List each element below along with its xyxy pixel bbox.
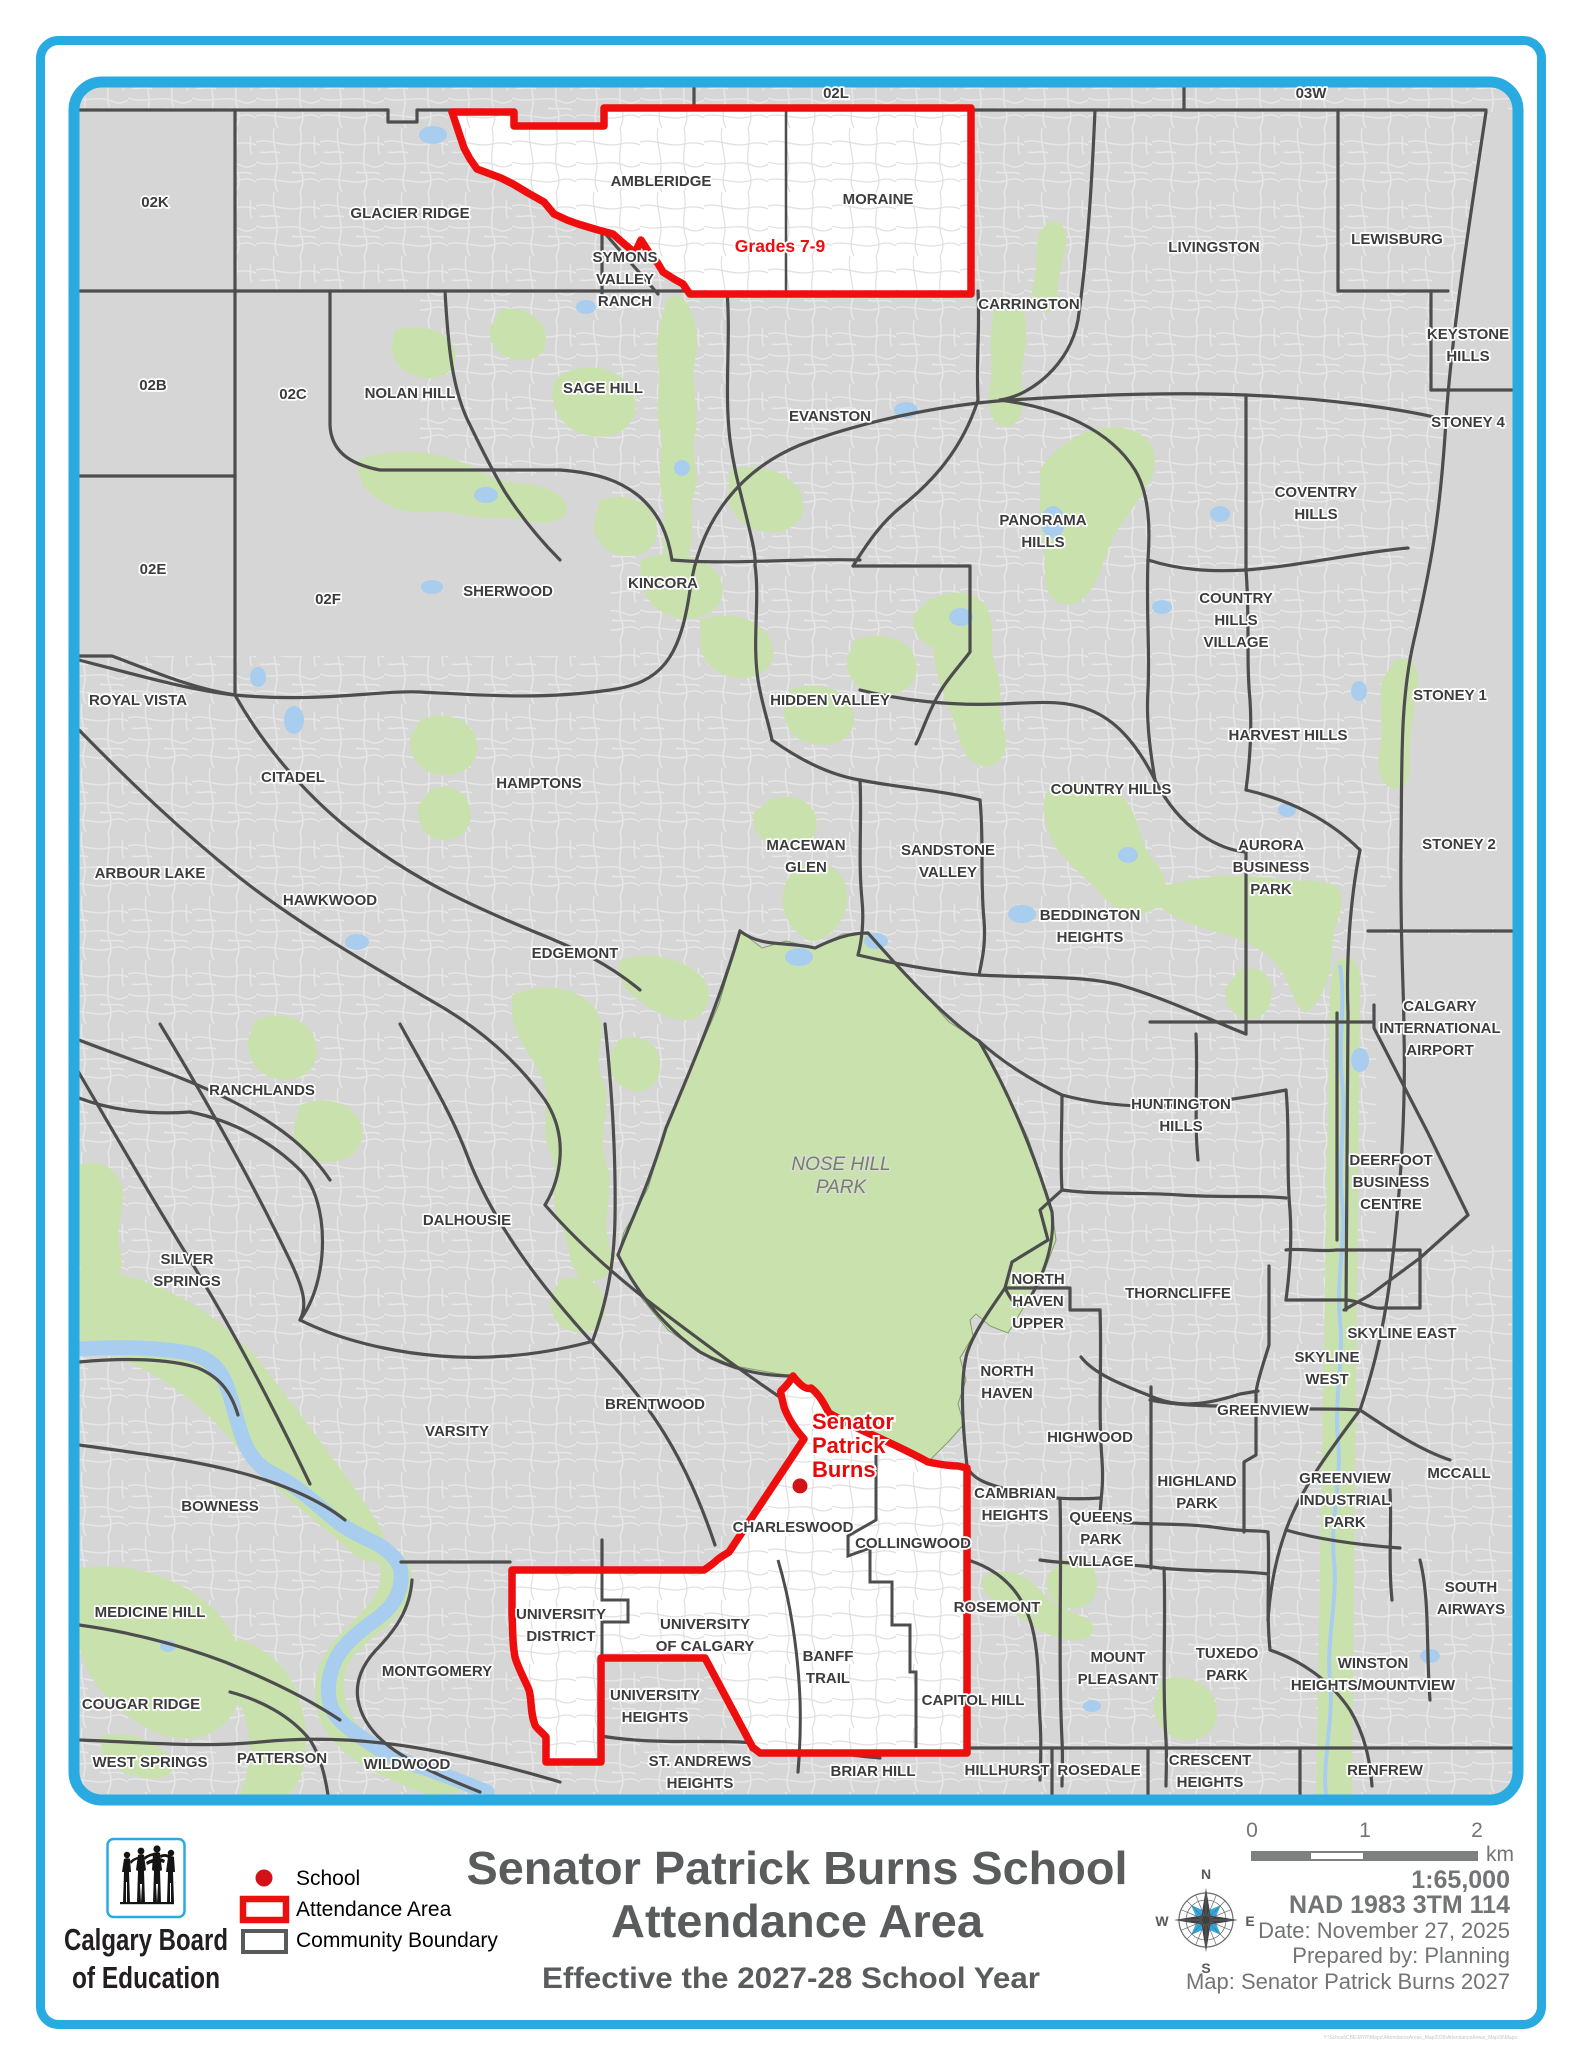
svg-text:INDUSTRIAL: INDUSTRIAL	[1300, 1492, 1391, 1509]
svg-text:EDGEMONT: EDGEMONT	[532, 945, 619, 962]
svg-text:SKYLINE EAST: SKYLINE EAST	[1347, 1325, 1456, 1342]
svg-text:DALHOUSIE: DALHOUSIE	[423, 1212, 511, 1229]
svg-text:CAPITOL HILL: CAPITOL HILL	[922, 1692, 1025, 1709]
svg-text:1:65,000: 1:65,000	[1411, 1866, 1510, 1894]
svg-text:VILLAGE: VILLAGE	[1203, 634, 1268, 651]
svg-text:HIGHWOOD: HIGHWOOD	[1047, 1429, 1133, 1446]
svg-text:NORTH: NORTH	[980, 1363, 1033, 1380]
svg-text:ROYAL VISTA: ROYAL VISTA	[89, 692, 187, 709]
svg-text:COVENTRY: COVENTRY	[1275, 484, 1358, 501]
svg-text:RENFREW: RENFREW	[1347, 1762, 1424, 1779]
svg-text:03W: 03W	[1296, 85, 1328, 102]
svg-text:02F: 02F	[315, 591, 341, 608]
svg-text:MORAINE: MORAINE	[843, 191, 914, 208]
svg-text:HAWKWOOD: HAWKWOOD	[283, 892, 377, 909]
svg-text:RANCHLANDS: RANCHLANDS	[209, 1082, 315, 1099]
svg-text:Calgary Board: Calgary Board	[64, 1922, 228, 1957]
svg-text:VALLEY: VALLEY	[919, 864, 977, 881]
svg-text:LEWISBURG: LEWISBURG	[1351, 231, 1443, 248]
svg-text:School: School	[296, 1867, 360, 1890]
svg-text:02B: 02B	[139, 377, 167, 394]
svg-text:WILDWOOD: WILDWOOD	[364, 1756, 451, 1773]
svg-text:W: W	[1155, 1913, 1169, 1929]
svg-text:Attendance Area: Attendance Area	[611, 1895, 983, 1947]
svg-text:of Education: of Education	[72, 1960, 220, 1995]
svg-text:BEDDINGTON: BEDDINGTON	[1040, 907, 1141, 924]
svg-text:HAVEN: HAVEN	[981, 1385, 1032, 1402]
svg-text:PARK: PARK	[1176, 1495, 1218, 1512]
svg-text:OF CALGARY: OF CALGARY	[656, 1638, 755, 1655]
svg-text:WINSTON: WINSTON	[1338, 1655, 1409, 1672]
svg-text:TUXEDO: TUXEDO	[1196, 1645, 1259, 1662]
svg-text:SOUTH: SOUTH	[1445, 1579, 1498, 1596]
svg-text:GLACIER RIDGE: GLACIER RIDGE	[350, 205, 469, 222]
svg-text:PARK: PARK	[1324, 1514, 1366, 1531]
svg-text:MCCALL: MCCALL	[1427, 1465, 1490, 1482]
svg-text:BUSINESS: BUSINESS	[1233, 859, 1310, 876]
svg-text:DISTRICT: DISTRICT	[526, 1628, 595, 1645]
svg-text:HEIGHTS/MOUNTVIEW: HEIGHTS/MOUNTVIEW	[1291, 1677, 1456, 1694]
svg-text:HEIGHTS: HEIGHTS	[982, 1507, 1049, 1524]
svg-text:LIVINGSTON: LIVINGSTON	[1168, 239, 1259, 256]
svg-text:1: 1	[1359, 1819, 1371, 1842]
svg-text:MONTGOMERY: MONTGOMERY	[382, 1663, 492, 1680]
svg-text:GREENVIEW: GREENVIEW	[1217, 1402, 1310, 1419]
svg-text:VARSITY: VARSITY	[425, 1423, 489, 1440]
svg-text:HARVEST HILLS: HARVEST HILLS	[1229, 727, 1348, 744]
svg-text:SYMONS: SYMONS	[592, 249, 657, 266]
svg-text:BANFF: BANFF	[803, 1648, 854, 1665]
svg-text:CENTRE: CENTRE	[1360, 1196, 1422, 1213]
svg-text:INTERNATIONAL: INTERNATIONAL	[1379, 1020, 1500, 1037]
svg-text:COUNTRY: COUNTRY	[1199, 590, 1273, 607]
svg-text:02L: 02L	[823, 85, 849, 102]
svg-text:BUSINESS: BUSINESS	[1353, 1174, 1430, 1191]
svg-text:HILLS: HILLS	[1021, 534, 1064, 551]
svg-text:CITADEL: CITADEL	[261, 769, 325, 786]
svg-text:GLEN: GLEN	[785, 859, 827, 876]
svg-text:Prepared by: Planning: Prepared by: Planning	[1292, 1943, 1510, 1968]
svg-text:Map: Senator Patrick Burns 202: Map: Senator Patrick Burns 2027	[1186, 1969, 1510, 1994]
svg-text:Grades 7-9: Grades 7-9	[735, 236, 826, 256]
svg-text:SHERWOOD: SHERWOOD	[463, 583, 553, 600]
svg-text:HEIGHTS: HEIGHTS	[622, 1709, 689, 1726]
svg-text:CHARLESWOOD: CHARLESWOOD	[733, 1519, 854, 1536]
svg-text:TRAIL: TRAIL	[806, 1670, 850, 1687]
svg-text:UPPER: UPPER	[1012, 1315, 1064, 1332]
svg-text:VILLAGE: VILLAGE	[1068, 1553, 1133, 1570]
svg-text:SPRINGS: SPRINGS	[153, 1273, 221, 1290]
svg-text:02E: 02E	[140, 561, 167, 578]
svg-text:AIRPORT: AIRPORT	[1406, 1042, 1474, 1059]
svg-text:km: km	[1486, 1843, 1514, 1866]
svg-text:NAD 1983 3TM 114: NAD 1983 3TM 114	[1289, 1891, 1510, 1919]
svg-text:ARBOUR LAKE: ARBOUR LAKE	[95, 865, 206, 882]
svg-text:ST. ANDREWS: ST. ANDREWS	[649, 1753, 752, 1770]
svg-text:CRESCENT: CRESCENT	[1169, 1752, 1252, 1769]
svg-text:BRENTWOOD: BRENTWOOD	[605, 1396, 705, 1413]
svg-text:Senator Patrick Burns School: Senator Patrick Burns School	[467, 1842, 1128, 1894]
svg-text:PATTERSON: PATTERSON	[237, 1750, 327, 1767]
svg-text:Senator: Senator	[812, 1409, 894, 1434]
svg-text:QUEENS: QUEENS	[1069, 1509, 1132, 1526]
svg-text:STONEY 4: STONEY 4	[1431, 414, 1505, 431]
svg-text:HAVEN: HAVEN	[1012, 1293, 1063, 1310]
svg-text:HEIGHTS: HEIGHTS	[1177, 1774, 1244, 1791]
svg-text:WEST: WEST	[1305, 1371, 1348, 1388]
svg-text:KINCORA: KINCORA	[628, 575, 698, 592]
svg-text:HIGHLAND: HIGHLAND	[1157, 1473, 1236, 1490]
svg-text:PARK: PARK	[1206, 1667, 1248, 1684]
svg-text:SANDSTONE: SANDSTONE	[901, 842, 995, 859]
svg-text:CARRINGTON: CARRINGTON	[978, 296, 1079, 313]
svg-text:2: 2	[1471, 1819, 1483, 1842]
svg-text:HILLS: HILLS	[1294, 506, 1337, 523]
svg-text:Date: November 27, 2025: Date: November 27, 2025	[1258, 1918, 1510, 1943]
svg-text:ROSEMONT: ROSEMONT	[954, 1599, 1041, 1616]
svg-text:Y:\School\CBE\MYP\Maps\Attenda: Y:\School\CBE\MYP\Maps\AttendanceAreas_M…	[1324, 2035, 1518, 2041]
svg-text:Burns: Burns	[812, 1457, 876, 1482]
svg-text:HILLS: HILLS	[1446, 348, 1489, 365]
svg-text:Patrick: Patrick	[812, 1433, 886, 1458]
svg-text:STONEY 2: STONEY 2	[1422, 836, 1496, 853]
svg-text:HEIGHTS: HEIGHTS	[667, 1775, 734, 1792]
svg-text:ROSEDALE: ROSEDALE	[1057, 1762, 1140, 1779]
svg-text:SILVER: SILVER	[160, 1251, 213, 1268]
svg-text:AIRWAYS: AIRWAYS	[1437, 1601, 1505, 1618]
svg-text:PARK: PARK	[1250, 881, 1292, 898]
svg-text:SAGE HILL: SAGE HILL	[563, 380, 643, 397]
svg-text:UNIVERSITY: UNIVERSITY	[660, 1616, 750, 1633]
svg-text:HILLS: HILLS	[1214, 612, 1257, 629]
svg-text:E: E	[1245, 1913, 1254, 1929]
svg-text:PLEASANT: PLEASANT	[1078, 1671, 1159, 1688]
svg-text:PANORAMA: PANORAMA	[999, 512, 1086, 529]
svg-text:GREENVIEW: GREENVIEW	[1299, 1470, 1392, 1487]
svg-text:AURORA: AURORA	[1238, 837, 1304, 854]
svg-text:COUGAR RIDGE: COUGAR RIDGE	[82, 1696, 200, 1713]
svg-text:SKYLINE: SKYLINE	[1294, 1349, 1359, 1366]
svg-text:VALLEY: VALLEY	[596, 271, 654, 288]
svg-text:HILLS: HILLS	[1159, 1118, 1202, 1135]
svg-text:Attendance Area: Attendance Area	[296, 1898, 452, 1921]
svg-text:COLLINGWOOD: COLLINGWOOD	[855, 1535, 971, 1552]
svg-text:Effective the 2027-28 School Y: Effective the 2027-28 School Year	[542, 1962, 1040, 1995]
svg-text:HUNTINGTON: HUNTINGTON	[1131, 1096, 1231, 1113]
svg-text:NORTH: NORTH	[1011, 1271, 1064, 1288]
svg-text:THORNCLIFFE: THORNCLIFFE	[1125, 1285, 1231, 1302]
svg-text:HILLHURST: HILLHURST	[965, 1762, 1050, 1779]
svg-text:AMBLERIDGE: AMBLERIDGE	[611, 173, 712, 190]
svg-text:MEDICINE HILL: MEDICINE HILL	[95, 1604, 206, 1621]
svg-text:NOLAN HILL: NOLAN HILL	[365, 385, 456, 402]
svg-text:NOSE HILL: NOSE HILL	[791, 1154, 890, 1175]
svg-text:MOUNT: MOUNT	[1091, 1649, 1146, 1666]
svg-text:HEIGHTS: HEIGHTS	[1057, 929, 1124, 946]
svg-text:STONEY 1: STONEY 1	[1413, 687, 1487, 704]
svg-text:0: 0	[1246, 1819, 1258, 1842]
svg-text:N: N	[1201, 1866, 1211, 1882]
svg-text:HAMPTONS: HAMPTONS	[496, 775, 582, 792]
svg-text:CAMBRIAN: CAMBRIAN	[974, 1485, 1056, 1502]
svg-text:UNIVERSITY: UNIVERSITY	[516, 1606, 606, 1623]
svg-text:KEYSTONE: KEYSTONE	[1427, 326, 1509, 343]
svg-text:02C: 02C	[279, 386, 307, 403]
svg-text:BOWNESS: BOWNESS	[181, 1498, 259, 1515]
svg-text:RANCH: RANCH	[598, 293, 652, 310]
svg-text:WEST SPRINGS: WEST SPRINGS	[92, 1754, 207, 1771]
svg-text:BRIAR HILL: BRIAR HILL	[831, 1763, 916, 1780]
svg-text:UNIVERSITY: UNIVERSITY	[610, 1687, 700, 1704]
svg-text:HIDDEN VALLEY: HIDDEN VALLEY	[770, 692, 890, 709]
svg-text:MACEWAN: MACEWAN	[766, 837, 845, 854]
svg-text:PARK: PARK	[816, 1177, 868, 1198]
svg-text:CALGARY: CALGARY	[1403, 998, 1477, 1015]
svg-text:02K: 02K	[141, 194, 169, 211]
svg-text:COUNTRY HILLS: COUNTRY HILLS	[1051, 781, 1172, 798]
svg-text:EVANSTON: EVANSTON	[789, 408, 871, 425]
svg-text:DEERFOOT: DEERFOOT	[1349, 1152, 1432, 1169]
svg-text:Community Boundary: Community Boundary	[296, 1929, 498, 1952]
svg-text:PARK: PARK	[1080, 1531, 1122, 1548]
